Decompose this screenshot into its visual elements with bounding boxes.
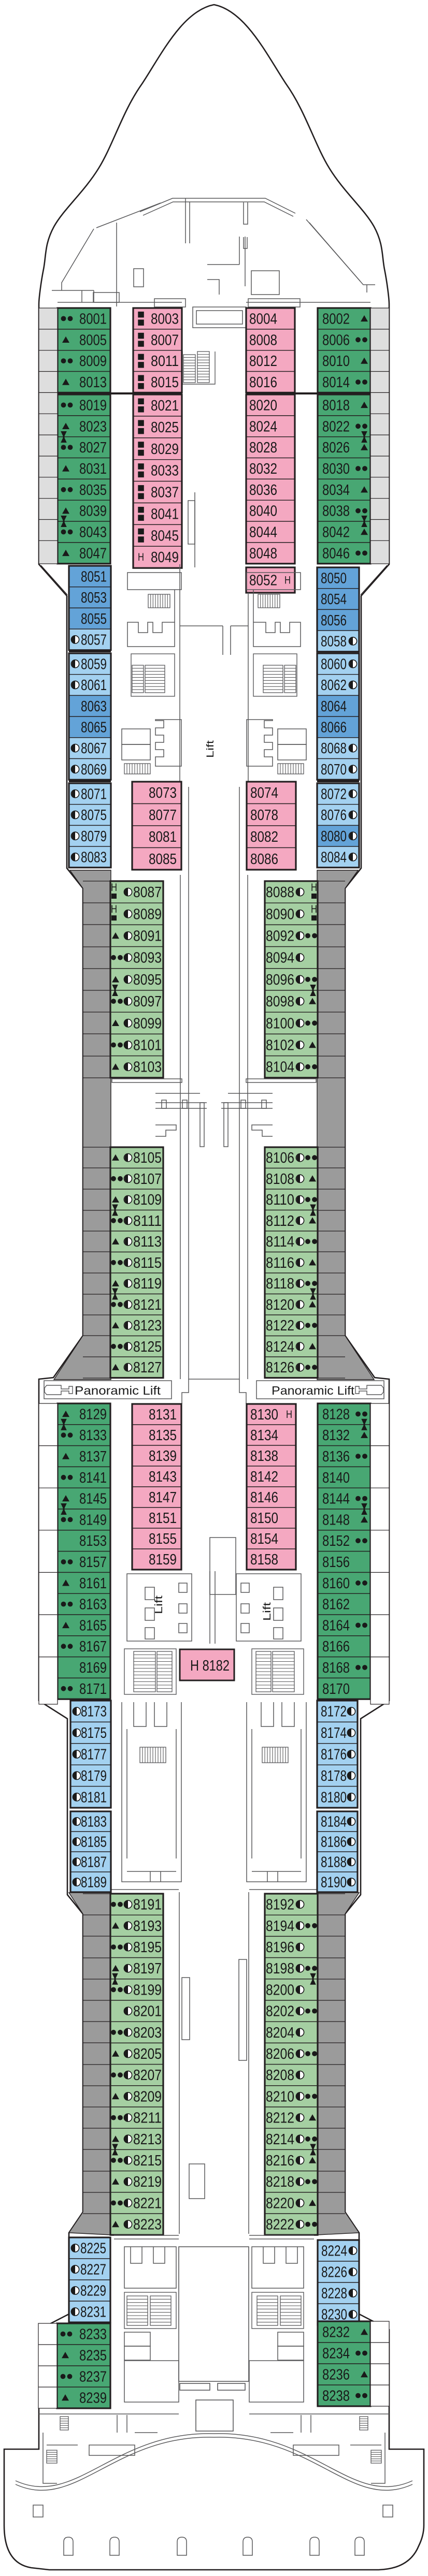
svg-text:8205: 8205 [133, 2046, 162, 2062]
svg-text:8070: 8070 [321, 762, 347, 778]
svg-text:8113: 8113 [133, 1234, 162, 1250]
svg-text:8222: 8222 [266, 2217, 294, 2233]
svg-text:8115: 8115 [133, 1255, 162, 1271]
svg-text:8187: 8187 [81, 1854, 107, 1871]
svg-text:8098: 8098 [266, 993, 294, 1010]
svg-text:8216: 8216 [266, 2153, 294, 2169]
svg-text:8122: 8122 [266, 1318, 294, 1334]
svg-text:8005: 8005 [79, 332, 107, 348]
svg-text:8068: 8068 [321, 740, 347, 757]
svg-text:8069: 8069 [81, 762, 107, 778]
svg-text:8060: 8060 [321, 656, 347, 672]
svg-text:8144: 8144 [322, 1491, 350, 1507]
svg-text:8151: 8151 [149, 1510, 177, 1527]
svg-text:8027: 8027 [79, 440, 107, 456]
svg-text:8016: 8016 [249, 374, 277, 391]
svg-text:8043: 8043 [79, 524, 107, 541]
svg-text:8239: 8239 [79, 2390, 107, 2407]
svg-text:8054: 8054 [321, 591, 347, 608]
svg-text:8111: 8111 [133, 1213, 162, 1230]
svg-text:8002: 8002 [322, 311, 350, 327]
svg-text:8062: 8062 [321, 677, 347, 694]
svg-text:8028: 8028 [249, 440, 277, 456]
svg-text:8181: 8181 [81, 1789, 107, 1806]
svg-text:8191: 8191 [133, 1897, 162, 1913]
svg-text:8163: 8163 [79, 1597, 107, 1613]
svg-text:8092: 8092 [266, 928, 294, 945]
svg-text:H: H [111, 903, 117, 915]
svg-text:8014: 8014 [322, 374, 350, 391]
svg-text:8140: 8140 [322, 1470, 350, 1486]
svg-text:H: H [286, 1409, 292, 1421]
svg-text:8225: 8225 [80, 2241, 106, 2257]
svg-text:8056: 8056 [321, 612, 347, 629]
svg-text:8055: 8055 [81, 611, 107, 627]
svg-text:8170: 8170 [322, 1681, 350, 1697]
svg-text:8073: 8073 [149, 785, 177, 801]
svg-text:8139: 8139 [149, 1448, 177, 1465]
svg-text:8219: 8219 [133, 2174, 162, 2190]
svg-text:8207: 8207 [133, 2067, 162, 2084]
svg-text:8030: 8030 [322, 461, 350, 477]
svg-text:8231: 8231 [80, 2304, 106, 2321]
svg-text:8206: 8206 [266, 2046, 294, 2062]
svg-text:8044: 8044 [249, 524, 277, 541]
svg-text:8058: 8058 [321, 633, 347, 650]
svg-text:8076: 8076 [321, 807, 347, 824]
svg-text:H: H [284, 575, 291, 587]
svg-text:8053: 8053 [81, 590, 107, 606]
svg-text:8238: 8238 [322, 2388, 350, 2405]
svg-text:8158: 8158 [250, 1552, 278, 1568]
svg-text:Panoramic Lift: Panoramic Lift [75, 1384, 161, 1397]
svg-text:8178: 8178 [321, 1768, 347, 1784]
svg-text:8120: 8120 [266, 1297, 294, 1313]
svg-text:8123: 8123 [133, 1318, 162, 1334]
svg-text:8063: 8063 [81, 698, 107, 715]
svg-text:8233: 8233 [79, 2326, 107, 2343]
svg-text:8234: 8234 [322, 2346, 350, 2362]
svg-text:8102: 8102 [266, 1037, 294, 1054]
svg-text:8197: 8197 [133, 1960, 162, 1977]
svg-text:8125: 8125 [133, 1339, 162, 1355]
svg-text:8052: 8052 [249, 573, 277, 589]
svg-text:8077: 8077 [149, 807, 177, 824]
svg-text:8013: 8013 [79, 374, 107, 391]
svg-text:8072: 8072 [321, 786, 347, 802]
svg-text:8024: 8024 [249, 418, 277, 435]
svg-text:8104: 8104 [266, 1059, 294, 1076]
svg-text:8235: 8235 [79, 2348, 107, 2364]
svg-text:8039: 8039 [79, 503, 107, 520]
svg-text:8026: 8026 [322, 440, 350, 456]
svg-text:8006: 8006 [322, 332, 350, 348]
svg-text:8050: 8050 [321, 570, 347, 587]
svg-text:8179: 8179 [81, 1768, 107, 1784]
svg-text:8150: 8150 [250, 1510, 278, 1527]
svg-text:8094: 8094 [266, 950, 294, 967]
svg-text:8228: 8228 [321, 2286, 347, 2302]
svg-text:8037: 8037 [151, 485, 179, 501]
svg-text:8208: 8208 [266, 2067, 294, 2084]
svg-text:8121: 8121 [133, 1297, 162, 1313]
svg-text:8091: 8091 [133, 928, 162, 945]
svg-text:8224: 8224 [321, 2243, 347, 2260]
svg-text:8211: 8211 [133, 2110, 162, 2127]
svg-text:8168: 8168 [322, 1660, 350, 1676]
svg-text:8084: 8084 [321, 849, 347, 866]
svg-text:8189: 8189 [81, 1875, 107, 1891]
svg-text:8022: 8022 [322, 418, 350, 435]
svg-text:H: H [138, 551, 144, 563]
svg-text:8018: 8018 [322, 397, 350, 414]
svg-text:8065: 8065 [81, 719, 107, 736]
svg-text:8214: 8214 [266, 2131, 294, 2148]
svg-text:8007: 8007 [151, 332, 179, 348]
svg-text:8209: 8209 [133, 2088, 162, 2105]
svg-text:8108: 8108 [266, 1171, 294, 1188]
svg-text:8064: 8064 [321, 698, 347, 715]
svg-text:8061: 8061 [81, 677, 107, 694]
svg-text:8067: 8067 [81, 740, 107, 757]
svg-text:8155: 8155 [149, 1531, 177, 1547]
svg-text:8149: 8149 [79, 1512, 107, 1528]
svg-text:8020: 8020 [249, 397, 277, 414]
svg-text:8124: 8124 [266, 1339, 294, 1355]
svg-text:8090: 8090 [266, 906, 294, 923]
svg-text:8184: 8184 [321, 1814, 347, 1831]
svg-text:8132: 8132 [322, 1427, 350, 1444]
svg-text:8229: 8229 [80, 2283, 106, 2300]
svg-text:8130: 8130 [250, 1407, 278, 1423]
svg-text:8227: 8227 [80, 2262, 106, 2278]
svg-text:8157: 8157 [79, 1554, 107, 1571]
svg-text:8223: 8223 [133, 2217, 162, 2233]
svg-text:8036: 8036 [249, 482, 277, 499]
svg-text:8200: 8200 [266, 1982, 294, 1998]
svg-text:8099: 8099 [133, 1015, 162, 1032]
svg-text:8147: 8147 [149, 1489, 177, 1506]
svg-text:8166: 8166 [322, 1638, 350, 1655]
svg-text:8159: 8159 [149, 1552, 177, 1568]
svg-text:8046: 8046 [322, 545, 350, 562]
svg-text:8152: 8152 [322, 1533, 350, 1549]
svg-text:8176: 8176 [321, 1747, 347, 1763]
svg-text:8202: 8202 [266, 2003, 294, 2020]
svg-text:8035: 8035 [79, 482, 107, 499]
svg-text:8107: 8107 [133, 1171, 162, 1188]
svg-text:8003: 8003 [151, 311, 179, 327]
svg-text:8160: 8160 [322, 1575, 350, 1592]
svg-text:8087: 8087 [133, 884, 162, 901]
svg-text:8177: 8177 [81, 1747, 107, 1763]
svg-text:8143: 8143 [149, 1469, 177, 1485]
svg-text:8088: 8088 [266, 884, 294, 901]
svg-text:8031: 8031 [79, 461, 107, 477]
svg-text:8164: 8164 [322, 1617, 350, 1634]
svg-text:8118: 8118 [266, 1276, 294, 1292]
svg-text:8201: 8201 [133, 2003, 162, 2020]
svg-text:8232: 8232 [322, 2324, 350, 2341]
svg-text:H 8182: H 8182 [190, 1658, 230, 1674]
svg-text:8041: 8041 [151, 506, 179, 523]
svg-text:8066: 8066 [321, 719, 347, 736]
svg-text:8135: 8135 [149, 1427, 177, 1444]
svg-text:8180: 8180 [321, 1789, 347, 1806]
svg-text:8032: 8032 [249, 461, 277, 477]
svg-text:8001: 8001 [79, 311, 107, 327]
svg-text:8198: 8198 [266, 1960, 294, 1977]
svg-text:8103: 8103 [133, 1059, 162, 1076]
svg-text:8153: 8153 [79, 1533, 107, 1549]
svg-text:8040: 8040 [249, 503, 277, 520]
svg-text:Panoramic Lift: Panoramic Lift [272, 1384, 355, 1397]
svg-text:8237: 8237 [79, 2369, 107, 2385]
svg-text:8131: 8131 [149, 1407, 177, 1423]
svg-text:8175: 8175 [81, 1725, 107, 1741]
svg-text:8199: 8199 [133, 1982, 162, 1998]
svg-text:8138: 8138 [250, 1448, 278, 1465]
svg-text:8137: 8137 [79, 1448, 107, 1465]
svg-text:8021: 8021 [151, 398, 179, 414]
svg-text:Lift: Lift [153, 1596, 165, 1614]
svg-text:Lift: Lift [261, 1602, 273, 1621]
svg-text:8100: 8100 [266, 1015, 294, 1032]
svg-text:8193: 8193 [133, 1918, 162, 1935]
svg-text:8165: 8165 [79, 1617, 107, 1634]
svg-text:8204: 8204 [266, 2025, 294, 2041]
svg-text:8096: 8096 [266, 972, 294, 988]
svg-text:8082: 8082 [250, 829, 278, 845]
svg-text:8186: 8186 [321, 1834, 347, 1851]
svg-text:8148: 8148 [322, 1512, 350, 1528]
svg-text:8004: 8004 [249, 311, 277, 327]
svg-text:8049: 8049 [151, 549, 179, 566]
svg-text:8109: 8109 [133, 1192, 162, 1208]
svg-text:H: H [311, 882, 317, 894]
svg-text:8128: 8128 [322, 1406, 350, 1423]
svg-text:8194: 8194 [266, 1918, 294, 1935]
svg-text:8045: 8045 [151, 528, 179, 544]
svg-text:8169: 8169 [79, 1660, 107, 1676]
svg-text:8114: 8114 [266, 1234, 294, 1250]
svg-text:8192: 8192 [266, 1897, 294, 1913]
svg-text:8047: 8047 [79, 545, 107, 562]
svg-text:8078: 8078 [250, 807, 278, 824]
svg-text:8141: 8141 [79, 1470, 107, 1486]
svg-text:8172: 8172 [321, 1704, 347, 1720]
svg-text:8101: 8101 [133, 1037, 162, 1054]
svg-text:8010: 8010 [322, 353, 350, 370]
svg-text:8127: 8127 [133, 1359, 162, 1376]
svg-text:8089: 8089 [133, 906, 162, 923]
svg-text:Lift: Lift [205, 740, 216, 758]
svg-text:8173: 8173 [81, 1704, 107, 1720]
svg-text:8086: 8086 [250, 851, 278, 868]
svg-text:8097: 8097 [133, 993, 162, 1010]
svg-text:8145: 8145 [79, 1491, 107, 1507]
svg-text:8134: 8134 [250, 1427, 278, 1444]
svg-text:8226: 8226 [321, 2264, 347, 2281]
svg-text:8110: 8110 [266, 1192, 294, 1208]
svg-text:8009: 8009 [79, 353, 107, 370]
svg-text:8085: 8085 [149, 851, 177, 868]
svg-text:8119: 8119 [133, 1276, 162, 1292]
svg-text:8081: 8081 [149, 829, 177, 845]
svg-text:8112: 8112 [266, 1213, 294, 1230]
svg-text:8136: 8136 [322, 1448, 350, 1465]
svg-text:8221: 8221 [133, 2195, 162, 2212]
svg-text:H: H [111, 882, 117, 894]
svg-text:8220: 8220 [266, 2195, 294, 2212]
svg-text:8195: 8195 [133, 1939, 162, 1956]
svg-text:8162: 8162 [322, 1597, 350, 1613]
svg-text:8190: 8190 [321, 1875, 347, 1891]
svg-text:8057: 8057 [81, 632, 107, 648]
svg-text:8011: 8011 [151, 353, 179, 370]
svg-text:8038: 8038 [322, 503, 350, 520]
svg-text:8012: 8012 [249, 353, 277, 370]
svg-text:8059: 8059 [81, 656, 107, 672]
svg-text:8154: 8154 [250, 1531, 278, 1547]
svg-text:8093: 8093 [133, 950, 162, 967]
svg-text:8051: 8051 [81, 568, 107, 585]
svg-text:8174: 8174 [321, 1725, 347, 1741]
svg-text:8015: 8015 [151, 374, 179, 391]
svg-text:8210: 8210 [266, 2088, 294, 2105]
svg-text:8042: 8042 [322, 524, 350, 541]
svg-text:8156: 8156 [322, 1554, 350, 1571]
svg-text:8019: 8019 [79, 397, 107, 414]
svg-text:8074: 8074 [250, 785, 278, 801]
svg-text:8071: 8071 [81, 786, 107, 802]
svg-text:8075: 8075 [81, 807, 107, 824]
svg-text:8106: 8106 [266, 1150, 294, 1166]
svg-text:8183: 8183 [81, 1814, 107, 1831]
svg-text:8196: 8196 [266, 1939, 294, 1956]
svg-text:8146: 8146 [250, 1489, 278, 1506]
svg-text:8129: 8129 [79, 1406, 107, 1423]
svg-text:8116: 8116 [266, 1255, 294, 1271]
svg-text:8215: 8215 [133, 2153, 162, 2169]
svg-text:8171: 8171 [79, 1681, 107, 1697]
svg-text:8095: 8095 [133, 972, 162, 988]
svg-text:8188: 8188 [321, 1854, 347, 1871]
svg-text:8008: 8008 [249, 332, 277, 348]
svg-text:8133: 8133 [79, 1427, 107, 1444]
svg-text:8126: 8126 [266, 1359, 294, 1376]
svg-text:8142: 8142 [250, 1469, 278, 1485]
svg-text:8023: 8023 [79, 418, 107, 435]
svg-text:8212: 8212 [266, 2110, 294, 2127]
svg-text:8083: 8083 [81, 849, 107, 866]
svg-text:8025: 8025 [151, 419, 179, 436]
svg-text:8029: 8029 [151, 441, 179, 458]
svg-text:8167: 8167 [79, 1638, 107, 1655]
svg-text:8161: 8161 [79, 1575, 107, 1592]
svg-text:8034: 8034 [322, 482, 350, 499]
svg-text:8033: 8033 [151, 463, 179, 479]
svg-text:8079: 8079 [81, 828, 107, 845]
svg-text:8213: 8213 [133, 2131, 162, 2148]
svg-text:8105: 8105 [133, 1150, 162, 1166]
svg-text:8185: 8185 [81, 1834, 107, 1851]
svg-text:8218: 8218 [266, 2174, 294, 2190]
svg-text:8080: 8080 [321, 828, 347, 845]
svg-text:H: H [311, 903, 317, 915]
svg-text:8048: 8048 [249, 545, 277, 562]
svg-text:8236: 8236 [322, 2367, 350, 2383]
svg-text:8203: 8203 [133, 2025, 162, 2041]
